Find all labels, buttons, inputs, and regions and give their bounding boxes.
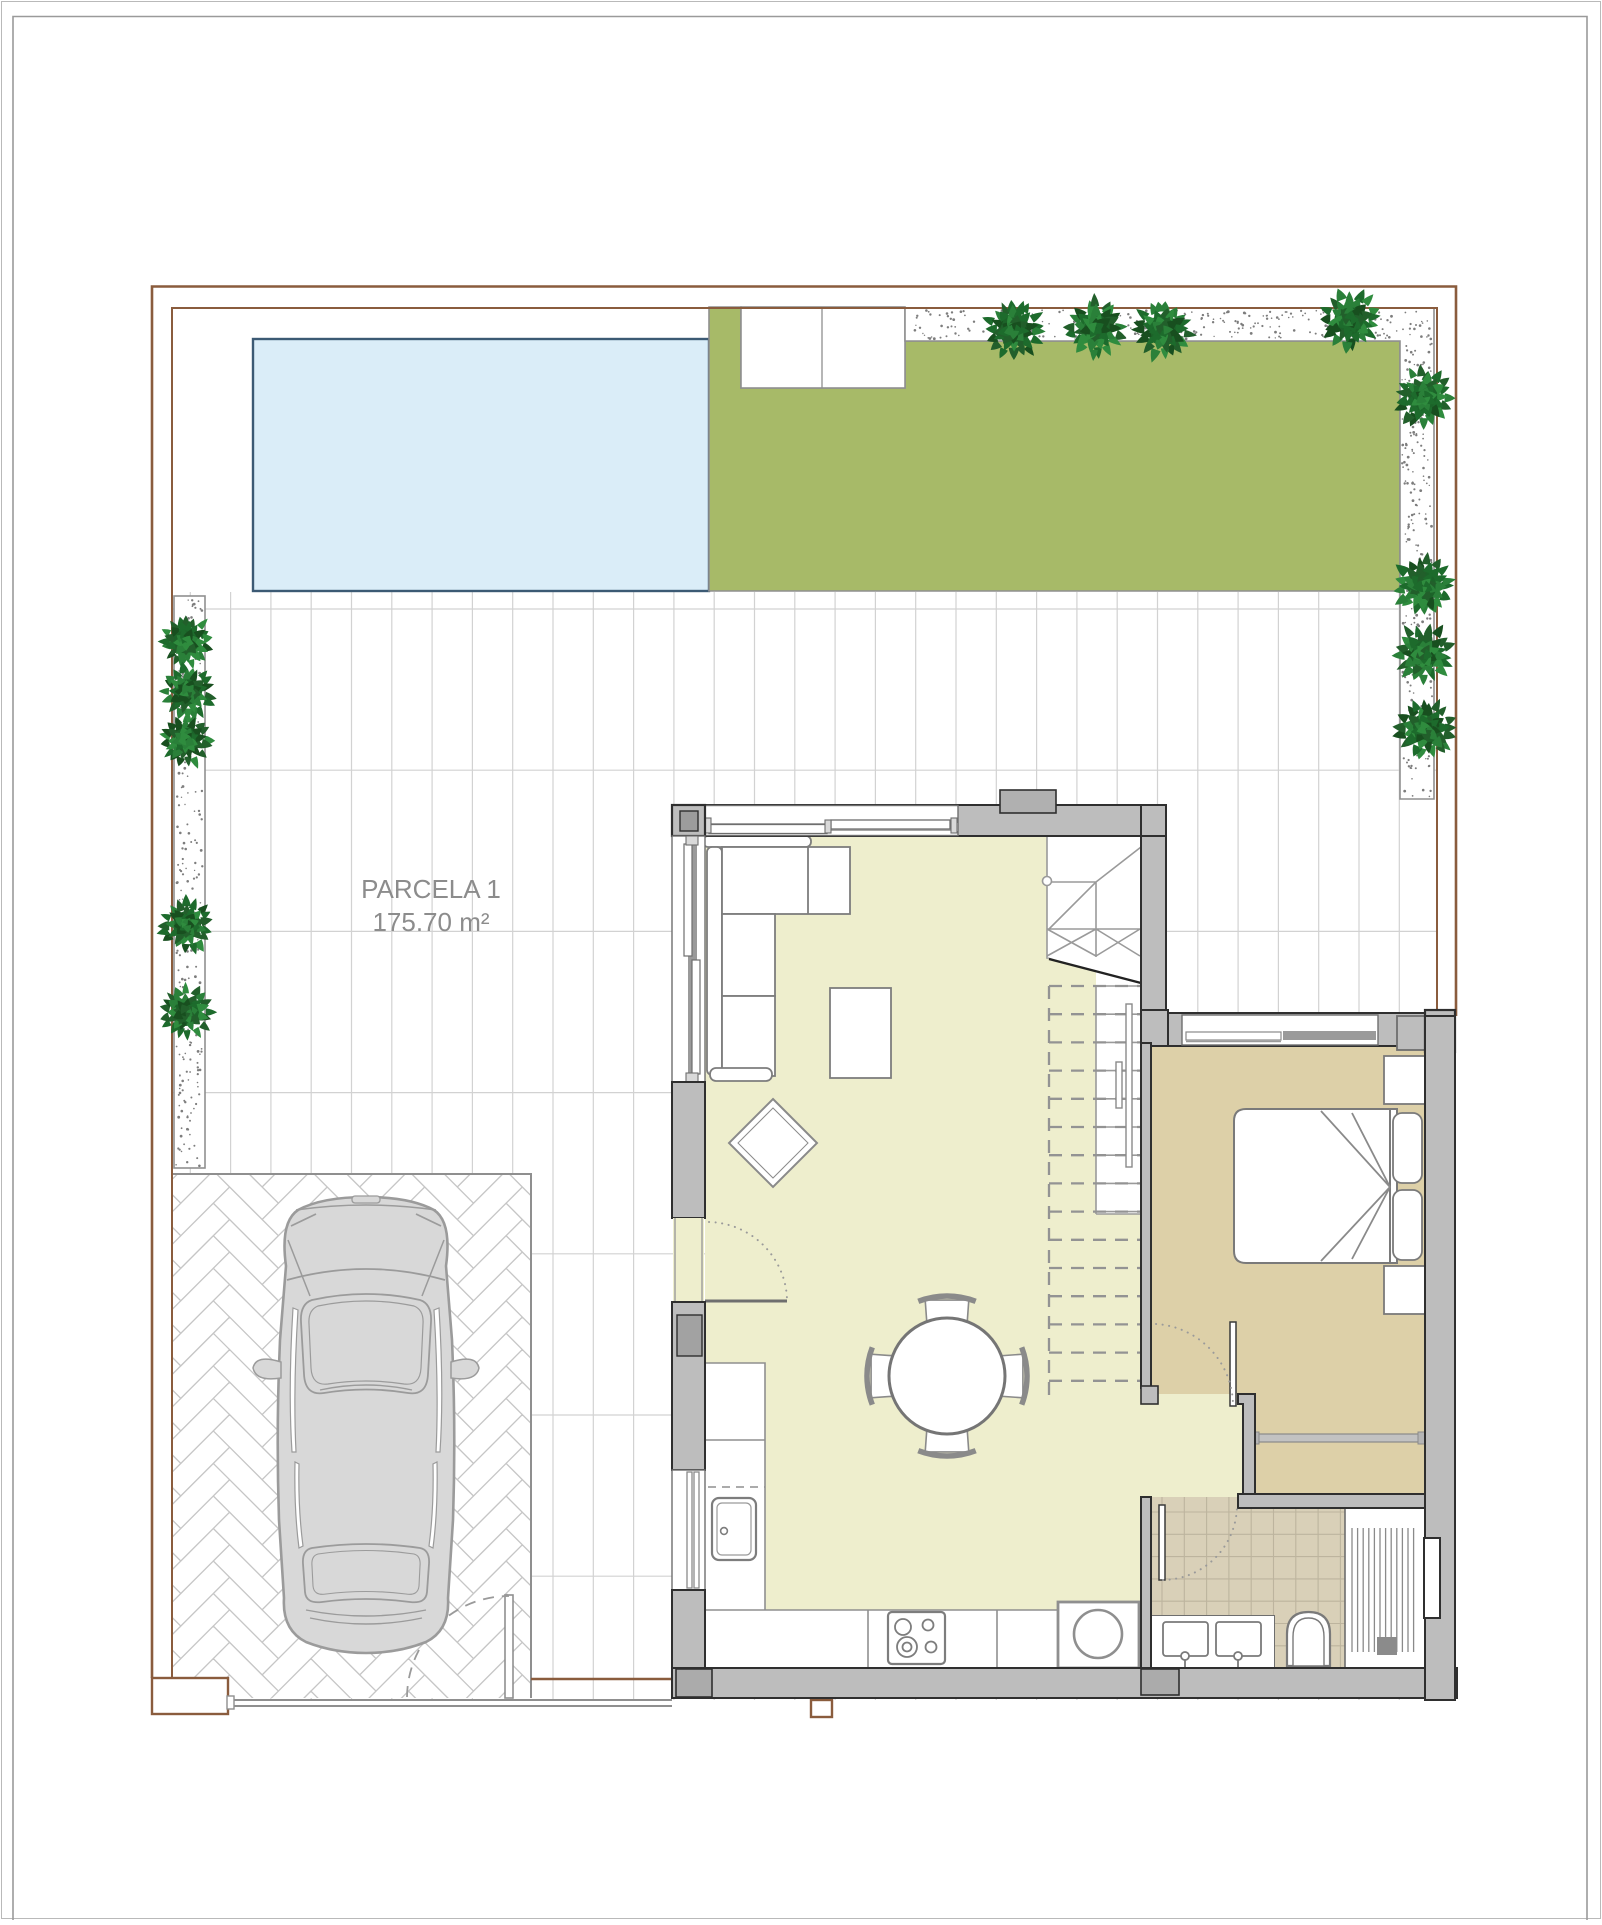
svg-text:175.70 m²: 175.70 m² xyxy=(372,907,489,937)
svg-text:PARCELA 1: PARCELA 1 xyxy=(361,874,501,904)
